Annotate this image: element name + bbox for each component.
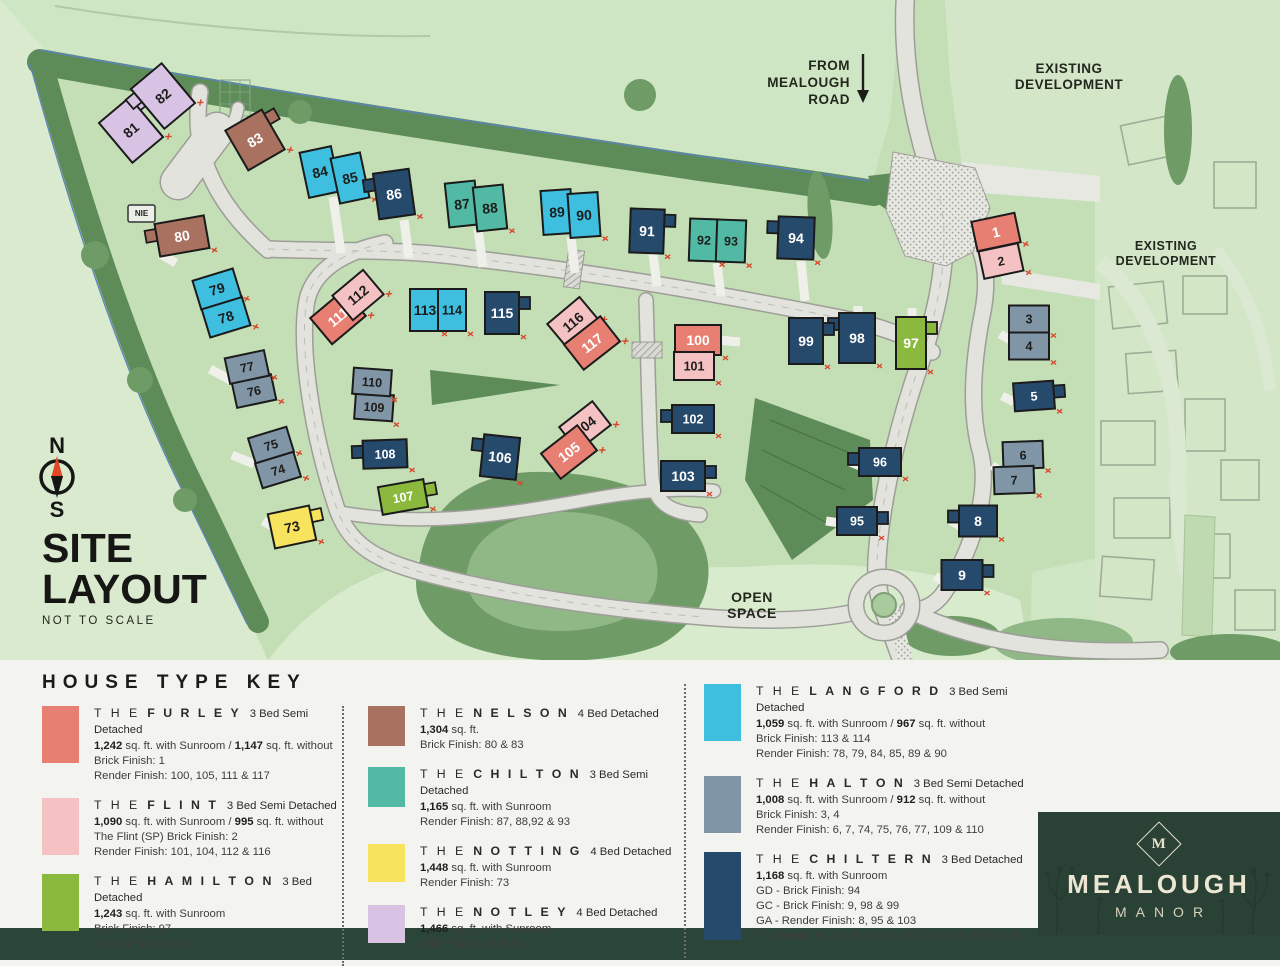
house-type-detail: Render Finish: 100, 105, 111 & 117 — [94, 769, 342, 784]
house-type-detail: G - Render Finish: 5, 86, 91, 96, 102, 1… — [756, 929, 1023, 944]
house-type-detail: Brick Finish: 1 — [94, 754, 342, 769]
house-type-name: T H EF U R L E Y3 Bed Semi Detached — [94, 706, 342, 738]
house-number: 7 — [1010, 473, 1017, 487]
legend-entry-notting: T H EN O T T I N G4 Bed Detached1,448 sq… — [368, 844, 684, 891]
house-number: 9 — [958, 567, 966, 583]
driveway — [478, 229, 483, 267]
house-number: 97 — [903, 335, 919, 351]
plot-101: 101 — [674, 352, 721, 385]
legend-entry-text: T H EC H I L T O N3 Bed Semi Detached1,1… — [420, 767, 684, 830]
existing-development-label-top: DEVELOPMENT — [1015, 77, 1124, 92]
house-number: 106 — [488, 448, 513, 466]
hamilton-color-swatch — [42, 874, 79, 931]
legend-entry-furley: T H EF U R L E Y3 Bed Semi Detached1,242… — [42, 706, 342, 784]
legend-entry-text: T H EN O T T I N G4 Bed Detached1,448 sq… — [420, 844, 671, 891]
house-number: 92 — [697, 233, 711, 247]
driveway — [404, 220, 409, 258]
house-number: 87 — [453, 195, 470, 213]
house-type-detail: 1,466 sq. ft. with Sunroom — [420, 922, 657, 937]
house-number: 113 — [414, 302, 437, 318]
nelson-color-swatch — [368, 706, 405, 746]
notting-color-swatch — [368, 844, 405, 882]
house-number: 3 — [1026, 313, 1033, 327]
legend-entry-text: T H EN O T L E Y4 Bed Detached1,466 sq. … — [420, 905, 657, 952]
house-type-name: T H EN E L S O N4 Bed Detached — [420, 706, 659, 722]
site-title-line1: SITE — [42, 528, 207, 569]
existing-house — [1101, 421, 1155, 465]
legend-entry-text: T H EF L I N T3 Bed Semi Detached1,090 s… — [94, 798, 337, 860]
driveway — [571, 237, 575, 273]
house-number: 98 — [849, 330, 865, 346]
legend-entry-chilton: T H EC H I L T O N3 Bed Semi Detached1,1… — [368, 767, 684, 830]
driveway — [717, 263, 721, 296]
brand-panel: M MEALOUGH MANOR — [1038, 812, 1280, 935]
house-number: 5 — [1030, 389, 1038, 403]
house-number: 93 — [724, 234, 738, 248]
house-type-detail: Render Finish: 101, 104, 112 & 116 — [94, 845, 337, 860]
house-number: 91 — [639, 223, 655, 240]
existing-house — [1185, 399, 1225, 451]
legend-entry-text: T H EH A L T O N3 Bed Semi Detached1,008… — [756, 776, 1024, 838]
crossing-hatch — [632, 342, 662, 358]
house-type-detail: 1,242 sq. ft. with Sunroom / 1,147 sq. f… — [94, 739, 342, 754]
house-type-detail: Render Finish: 73 — [420, 876, 671, 891]
existing-house — [1100, 556, 1155, 600]
notley-color-swatch — [368, 905, 405, 943]
bush — [624, 79, 656, 111]
hedge-band — [1182, 515, 1215, 637]
compass-north-label: N — [49, 433, 65, 458]
house-type-name: T H EC H I L T O N3 Bed Semi Detached — [420, 767, 684, 799]
house-type-detail: Brick Finish: 3, 4 — [756, 808, 1024, 823]
house-number: 6 — [1019, 448, 1026, 462]
house-type-detail: Render Finish: 6, 7, 74, 75, 76, 77, 109… — [756, 823, 1024, 838]
house-type-detail: 1,008 sq. ft. with Sunroom / 912 sq. ft.… — [756, 793, 1024, 808]
house-type-detail: Render Finish: 107 — [94, 937, 342, 952]
house-type-detail: Brick Finish: 81 & 82 — [420, 937, 657, 952]
house-number: 100 — [686, 332, 710, 348]
house-number: 80 — [173, 227, 191, 245]
existing-house — [1221, 460, 1259, 500]
not-to-scale-label: NOT TO SCALE — [42, 615, 207, 627]
house-type-detail: 1,168 sq. ft. with Sunroom — [756, 869, 1023, 884]
legend-entry-notley: T H EN O T L E Y4 Bed Detached1,466 sq. … — [368, 905, 684, 952]
house-type-detail: 1,059 sq. ft. with Sunroom / 967 sq. ft.… — [756, 717, 1050, 732]
house-number: 108 — [374, 447, 395, 462]
house-number: 90 — [576, 207, 593, 224]
existing-house — [1214, 162, 1256, 208]
plot-4: 4 — [1009, 333, 1056, 365]
house-number: 76 — [246, 383, 263, 400]
house-type-name: T H EH A M I L T O N3 Bed Detached — [94, 874, 342, 906]
logo-monogram: M — [1152, 835, 1166, 852]
junction-stipple — [886, 152, 990, 266]
house-type-detail: Render Finish: 78, 79, 84, 85, 89 & 90 — [756, 747, 1050, 762]
house-type-detail: The Flint (SP) Brick Finish: 2 — [94, 830, 337, 845]
existing-dev-field-top — [940, 0, 1280, 185]
furley-color-swatch — [42, 706, 79, 763]
existing-development-label-right: EXISTING — [1135, 239, 1197, 253]
from-mealough-road-label: FROM — [808, 58, 850, 73]
bush — [127, 367, 153, 393]
legend-entry-flint: T H EF L I N T3 Bed Semi Detached1,090 s… — [42, 798, 342, 860]
bush — [81, 241, 109, 269]
bush — [173, 488, 197, 512]
house-number: 4 — [1026, 340, 1033, 354]
house-type-detail: 1,165 sq. ft. with Sunroom — [420, 800, 684, 815]
house-type-detail: GA - Render Finish: 8, 95 & 103 — [756, 914, 1023, 929]
house-type-detail: Render Finish: 87, 88,92 & 93 — [420, 815, 684, 830]
house-type-detail: Brick Finish: 113 & 114 — [756, 732, 1050, 747]
house-number: 8 — [974, 513, 982, 529]
legend-entry-nelson: T H EN E L S O N4 Bed Detached1,304 sq. … — [368, 706, 684, 753]
legend-entry-text: T H EC H I L T E R N3 Bed Detached1,168 … — [756, 852, 1023, 944]
house-type-detail: GD - Brick Finish: 94 — [756, 884, 1023, 899]
legend-entry-text: T H EF U R L E Y3 Bed Semi Detached1,242… — [94, 706, 342, 784]
driveway — [1002, 396, 1014, 402]
logo-name: MEALOUGH — [1067, 869, 1251, 900]
house-type-detail: 1,304 sq. ft. — [420, 723, 659, 738]
legend-column-2: T H EN E L S O N4 Bed Detached1,304 sq. … — [342, 706, 684, 966]
legend-entry-hamilton: T H EH A M I L T O N3 Bed Detached1,243 … — [42, 874, 342, 952]
langford-color-swatch — [704, 684, 741, 741]
house-number: 95 — [850, 515, 864, 529]
bush — [288, 100, 312, 124]
legend-entry-chiltern: T H EC H I L T E R N3 Bed Detached1,168 … — [704, 852, 1050, 944]
existing-development-label-right: DEVELOPMENT — [1116, 254, 1217, 268]
house-type-detail: 1,243 sq. ft. with Sunroom — [94, 907, 342, 922]
legend-entry-text: T H EH A M I L T O N3 Bed Detached1,243 … — [94, 874, 342, 952]
chilton-color-swatch — [368, 767, 405, 807]
house-number: 77 — [239, 359, 256, 376]
conifer-tree — [1164, 75, 1192, 185]
existing-house — [1114, 498, 1170, 538]
house-number: 114 — [442, 304, 462, 318]
chiltern-color-swatch — [704, 852, 741, 940]
house-type-name: T H EC H I L T E R N3 Bed Detached — [756, 852, 1023, 868]
house-type-detail: Brick Finish: 97 — [94, 922, 342, 937]
from-mealough-road-label: MEALOUGH — [767, 75, 850, 90]
house-number: 99 — [798, 333, 814, 349]
existing-house — [1183, 276, 1227, 314]
legend-entry-langford: T H EL A N G F O R D3 Bed Semi Detached1… — [704, 684, 1050, 762]
driveway — [653, 254, 657, 286]
house-type-name: T H EN O T T I N G4 Bed Detached — [420, 844, 671, 860]
house-number: 94 — [788, 230, 804, 247]
house-number: 115 — [491, 305, 514, 321]
logo-subname: MANOR — [1106, 904, 1212, 920]
house-number: 101 — [684, 360, 705, 374]
house-number: 88 — [481, 199, 498, 217]
house-number: 86 — [385, 185, 403, 203]
house-type-detail: 1,448 sq. ft. with Sunroom — [420, 861, 671, 876]
legend-entry-text: T H EN E L S O N4 Bed Detached1,304 sq. … — [420, 706, 659, 753]
halton-color-swatch — [704, 776, 741, 833]
house-type-name: T H EN O T L E Y4 Bed Detached — [420, 905, 657, 921]
driveway — [801, 261, 805, 301]
house-number: 103 — [671, 468, 695, 484]
legend-column-3: T H EL A N G F O R D3 Bed Semi Detached1… — [684, 684, 1050, 958]
house-number: 89 — [549, 204, 566, 221]
legend-heading: HOUSE TYPE KEY — [42, 672, 1280, 694]
from-mealough-road-label: ROAD — [808, 92, 850, 107]
house-type-name: T H EH A L T O N3 Bed Semi Detached — [756, 776, 1024, 792]
legend-entry-text: T H EL A N G F O R D3 Bed Semi Detached1… — [756, 684, 1050, 762]
house-type-detail: GC - Brick Finish: 9, 98 & 99 — [756, 899, 1023, 914]
existing-development-label-top: EXISTING — [1035, 61, 1102, 76]
legend-entry-halton: T H EH A L T O N3 Bed Semi Detached1,008… — [704, 776, 1050, 838]
compass-south-label: S — [50, 497, 65, 522]
house-number: 109 — [363, 400, 385, 415]
house-number: 102 — [683, 413, 704, 427]
open-space-label: SPACE — [727, 605, 777, 621]
open-space-label: OPEN — [731, 589, 773, 605]
house-type-name: T H EF L I N T3 Bed Semi Detached — [94, 798, 337, 814]
roundabout-island — [872, 593, 896, 617]
site-title-line2: LAYOUT — [42, 569, 207, 610]
house-type-name: T H EL A N G F O R D3 Bed Semi Detached — [756, 684, 1050, 716]
nie-label: NIE — [135, 209, 149, 218]
flint-color-swatch — [42, 798, 79, 855]
house-number: 96 — [873, 456, 887, 470]
site-title-block: SITE LAYOUT NOT TO SCALE — [42, 528, 207, 627]
house-number: 110 — [361, 375, 382, 390]
existing-house — [1235, 590, 1275, 630]
legend-column-1: T H EF U R L E Y3 Bed Semi Detached1,242… — [42, 706, 342, 966]
house-type-detail: Brick Finish: 80 & 83 — [420, 738, 659, 753]
house-type-detail: 1,090 sq. ft. with Sunroom / 995 sq. ft.… — [94, 815, 337, 830]
